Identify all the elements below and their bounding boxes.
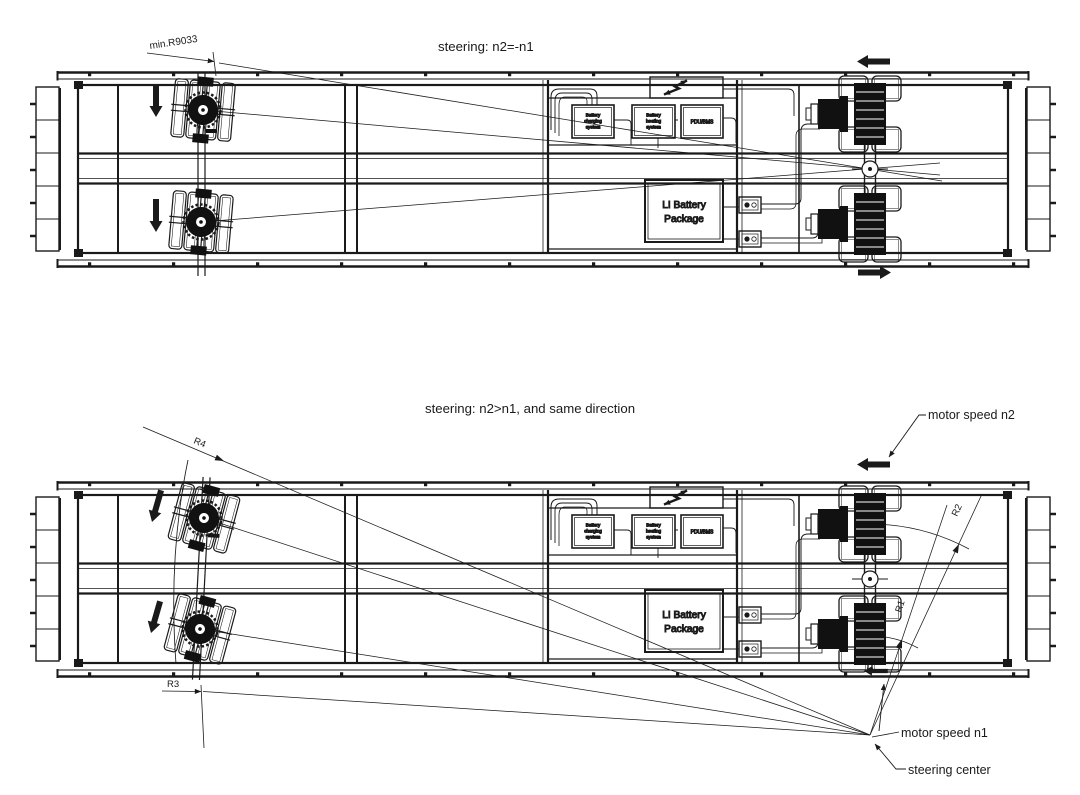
bottom-drive-unit-n2 [806, 486, 901, 562]
top-diagram: steering: n2=-n1 min.R9033 [30, 34, 1056, 279]
bottom-chassis [30, 481, 1056, 678]
top-drive-unit-n1 [806, 186, 901, 262]
motor-speed-n2-label: motor speed n2 [928, 408, 1015, 422]
steering-diagram-canvas: Battery charging system Battery heating … [0, 0, 1080, 795]
top-rear-bogie [166, 186, 236, 257]
top-drive-unit-n2 [806, 76, 901, 152]
top-left-motion-arrow-1 [150, 84, 163, 117]
technical-drawing-page: Battery charging system Battery heating … [0, 0, 1080, 795]
bottom-radius-lines [143, 427, 982, 748]
top-n2-direction-arrow [857, 55, 890, 68]
r2-label: R2 [950, 503, 965, 519]
min-radius-label: min.R9033 [149, 34, 199, 52]
bottom-diagram-title: steering: n2>n1, and same direction [425, 401, 635, 416]
bottom-diagram: steering: n2>n1, and same direction R4 R… [30, 401, 1056, 777]
bottom-left-motion-arrow-2 [145, 599, 167, 634]
bottom-rear-bogie [161, 589, 240, 669]
bottom-drive-unit-n1 [806, 596, 901, 672]
min-radius-annotation: min.R9033 [147, 34, 216, 76]
motor-speed-n1-label: motor speed n1 [901, 726, 988, 740]
r3-label: R3 [167, 679, 179, 690]
steering-center-label: steering center [908, 763, 991, 777]
bottom-n2-direction-arrow [857, 458, 890, 471]
bottom-left-motion-arrow-1 [146, 488, 168, 523]
top-diagram-title: steering: n2=-n1 [438, 39, 534, 54]
motor-speed-n2-annotation: motor speed n2 [889, 408, 1015, 457]
steering-center-annotation: steering center [875, 744, 991, 777]
top-n1-direction-arrow [858, 266, 891, 279]
top-chassis [30, 71, 1056, 268]
bottom-front-bogie [165, 478, 244, 558]
top-left-motion-arrow-2 [150, 199, 163, 232]
r3-annotation: R3 [162, 679, 201, 692]
top-radius-lines [201, 63, 942, 222]
